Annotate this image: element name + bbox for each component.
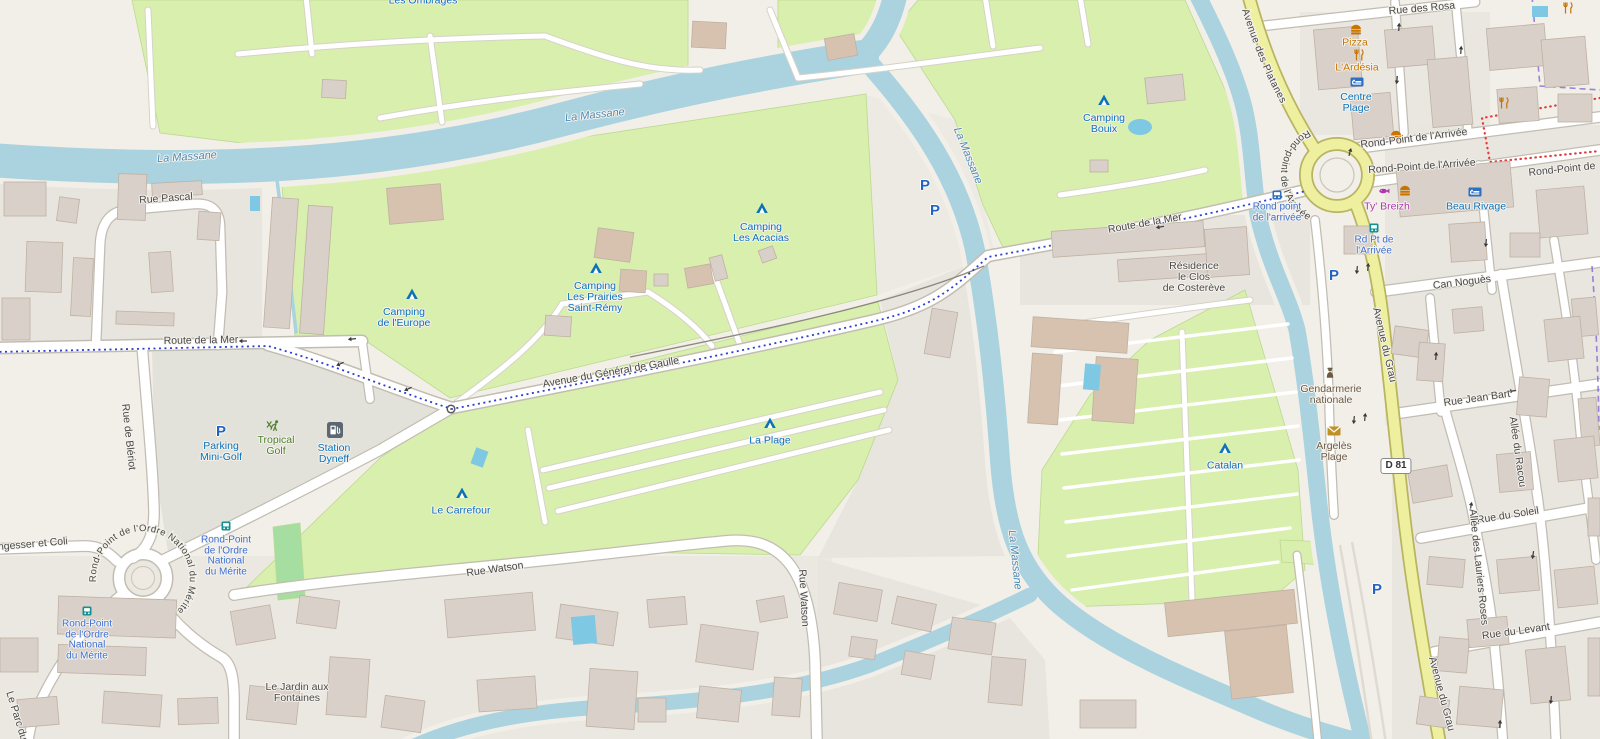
hotel-icon xyxy=(1351,78,1364,87)
parking-symbol: P xyxy=(930,203,940,219)
poi-label-centre-plage: CentrePlage xyxy=(1340,92,1372,114)
poi-label-station-dyneff: StationDyneff xyxy=(318,443,351,465)
poi-label-les-ombrages: Les Ombrages xyxy=(389,0,458,7)
parking-symbol: P xyxy=(920,178,930,194)
tram-stop-icon xyxy=(1370,224,1379,233)
poi-label-pizza: Pizza xyxy=(1342,37,1368,48)
poi-label-tropical-golf: TropicalGolf xyxy=(258,435,295,457)
bus-stop-icon xyxy=(1273,191,1282,200)
poi-label-camping-les-prairies: CampingLes PrairiesSaint-Rémy xyxy=(567,281,622,315)
poi-label-le-carrefour: Le Carrefour xyxy=(432,505,491,516)
post-office-icon xyxy=(1328,427,1341,436)
tram-stop-icon xyxy=(222,522,231,531)
poi-label-jardin-fontaines: Le Jardin auxFontaines xyxy=(265,682,328,704)
poi-label-ty-breizh: Ty' Breizh xyxy=(1364,201,1410,212)
pond xyxy=(1128,119,1152,135)
poi-label-camping-bouix: CampingBouix xyxy=(1083,113,1125,135)
transit-label-onm-stop-right: Rond-Pointde l'OrdreNationaldu Mérite xyxy=(201,536,251,579)
transit-label-onm-stop-left: Rond-Pointde l'OrdreNationaldu Mérite xyxy=(62,620,112,663)
poi-label-camping-les-acacias: CampingLes Acacias xyxy=(733,222,789,244)
parking-symbol: P xyxy=(216,424,226,440)
tram-stop-icon xyxy=(83,607,92,616)
street-label-rue-watson-vertical: Rue Watson xyxy=(796,569,810,627)
arrivee-roundabout-island xyxy=(1320,158,1354,192)
parking-symbol: P xyxy=(1372,582,1382,598)
street-label-route-de-la-mer: Route de la Mer xyxy=(164,335,239,348)
poi-label-beau-rivage: Beau Rivage xyxy=(1446,201,1506,212)
onm-roundabout-island xyxy=(132,567,155,590)
transit-label-rond-point-arrivee-stop: Rond pointde l'arrivée xyxy=(1253,202,1302,223)
fuel-station-icon xyxy=(327,422,343,438)
poi-label-residence-costereve: Résidencele Closde Costerève xyxy=(1163,261,1225,295)
hotel-icon xyxy=(1469,188,1482,197)
poi-label-parking-mini-golf: ParkingMini-Golf xyxy=(200,441,242,463)
map-canvas[interactable]: Avenue des Platanes Rond-point de l'Arri… xyxy=(0,0,1600,739)
poi-label-catalan: Catalan xyxy=(1207,460,1243,471)
route-badge-d81: D 81 xyxy=(1380,458,1411,474)
poi-label-argeles-plage: ArgelèsPlage xyxy=(1316,441,1352,463)
poi-label-gendarmerie: Gendarmerienationale xyxy=(1300,384,1361,406)
poi-label-l-ardesia: L'Ardésia xyxy=(1335,62,1378,73)
parking-symbol: P xyxy=(1329,268,1339,284)
transit-label-rd-pt-arrivee-stop: Rd Pt del'Arrivée xyxy=(1355,235,1394,256)
poi-label-camping-de-l-europe: Campingde l'Europe xyxy=(378,307,431,329)
poi-label-la-plage: La Plage xyxy=(749,435,790,446)
